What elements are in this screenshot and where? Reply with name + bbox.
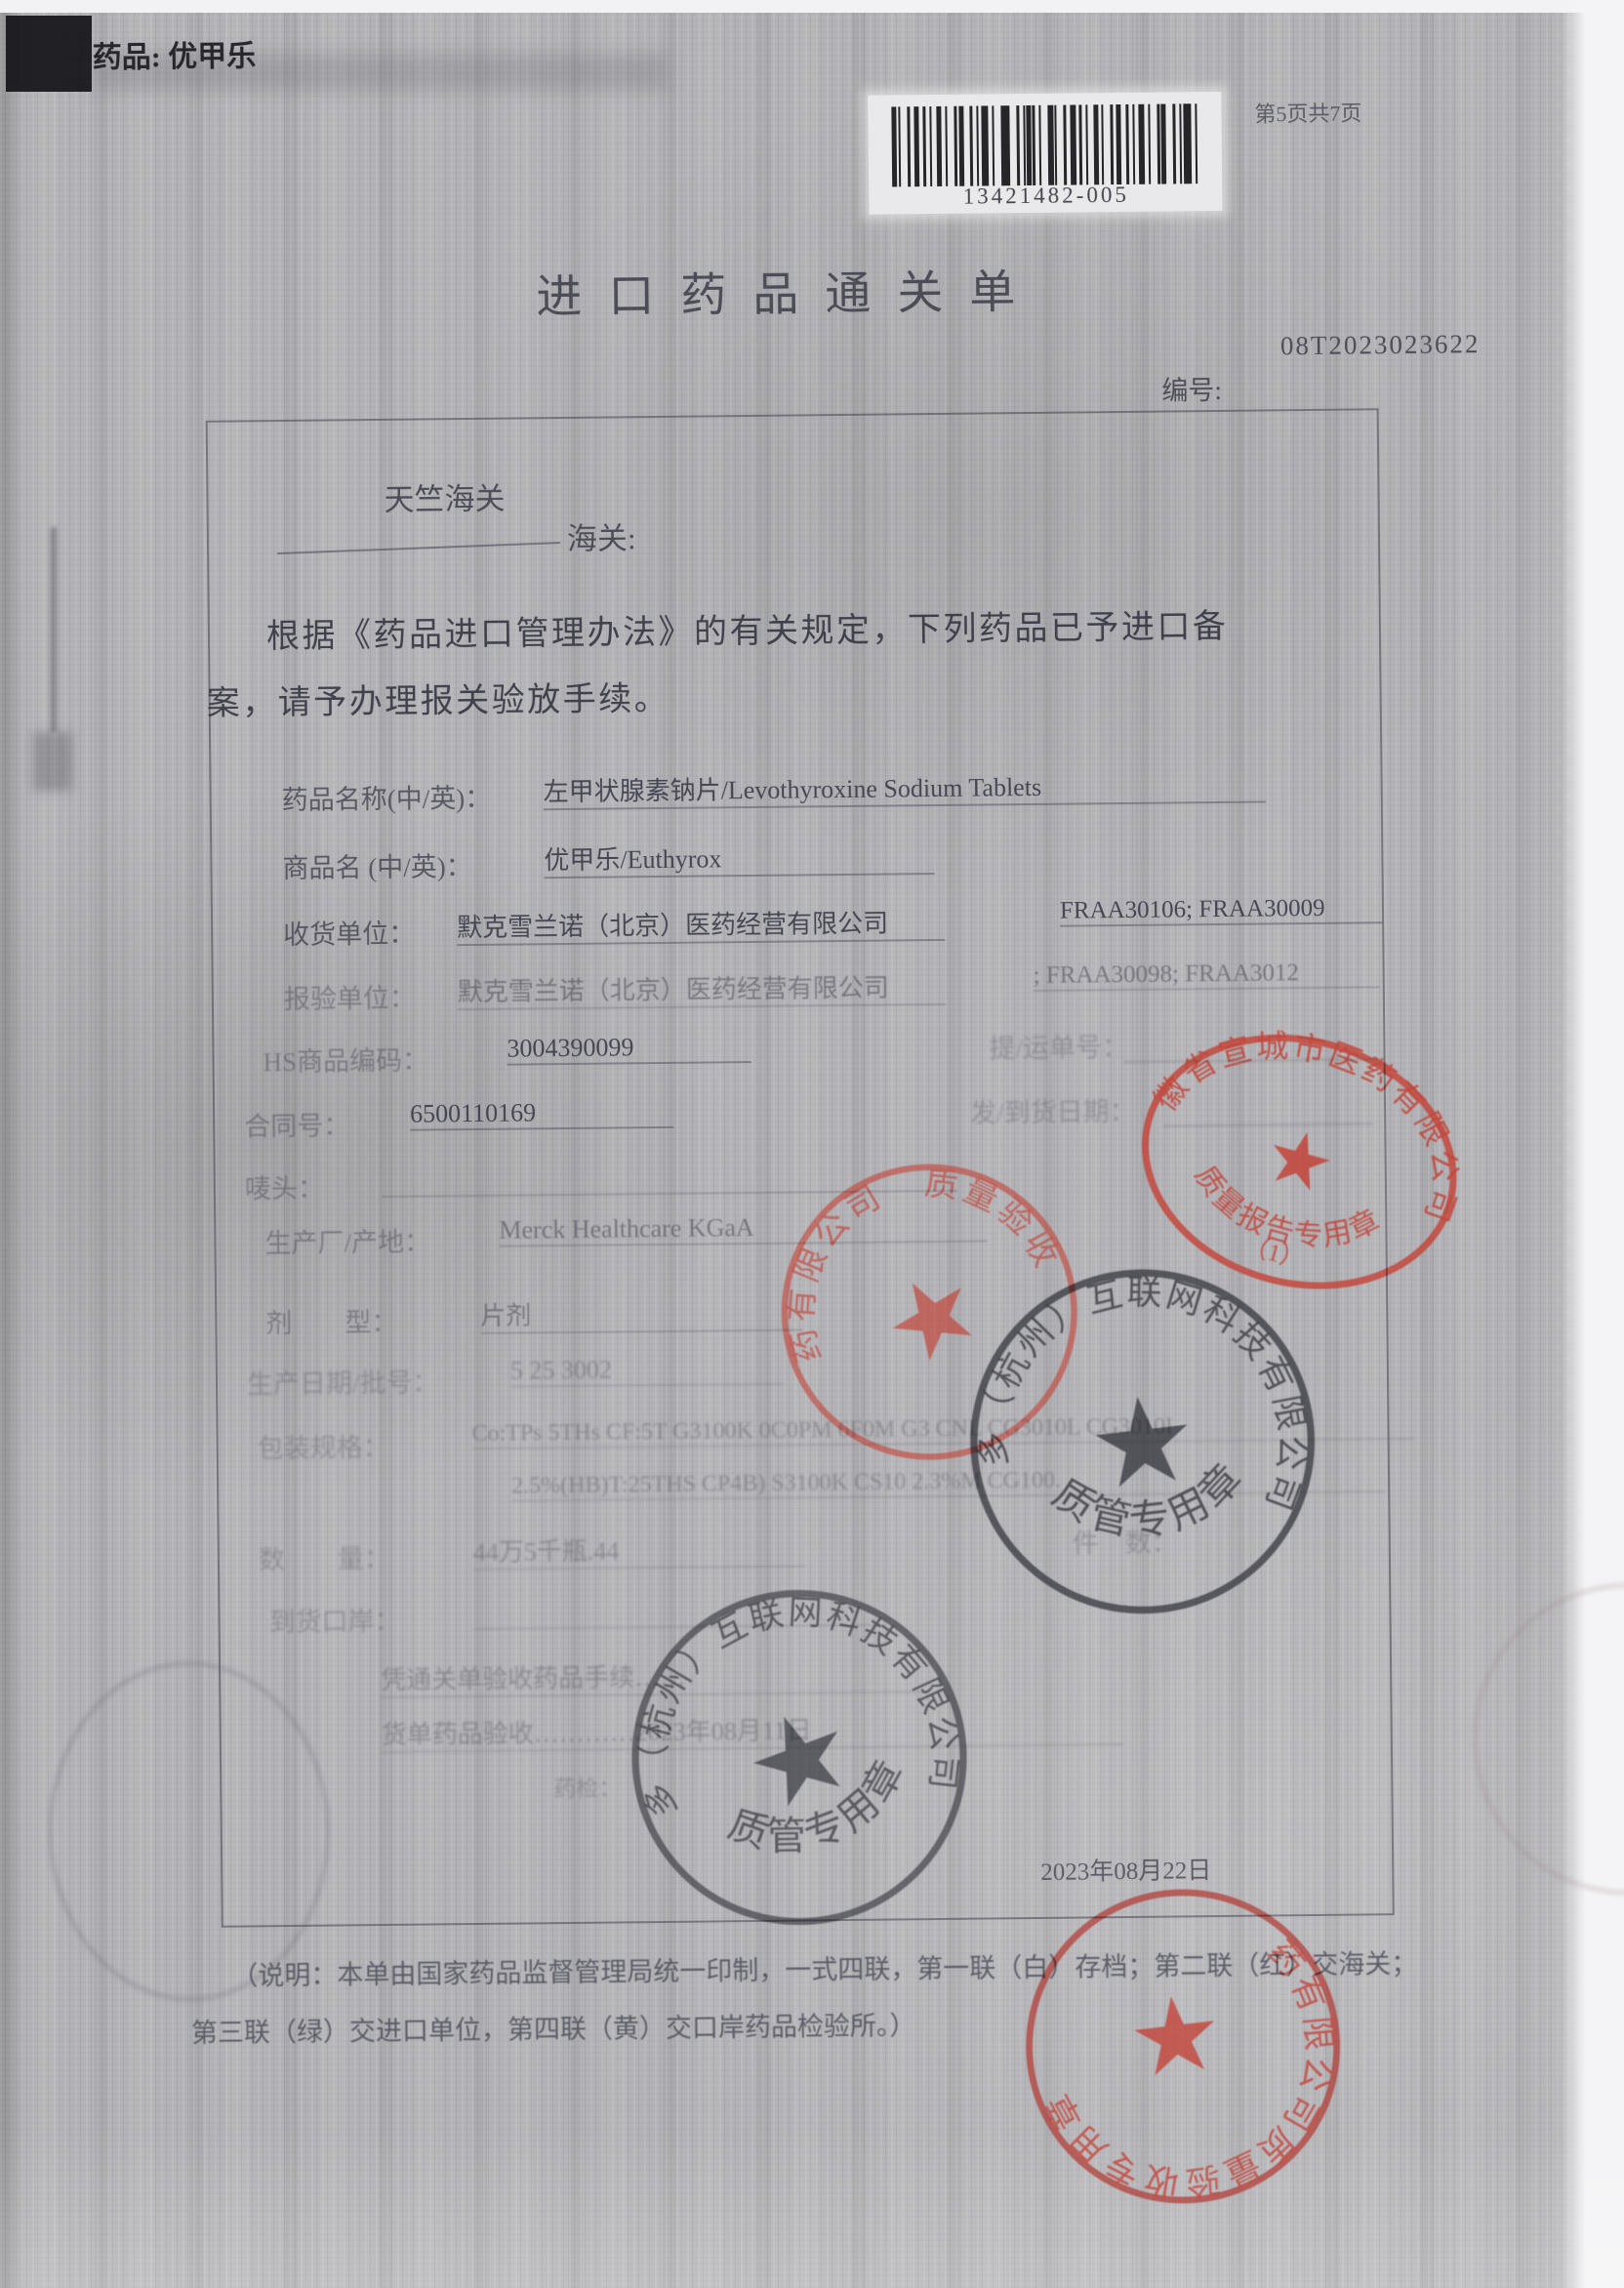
- field-label: 收货单位：: [283, 913, 415, 952]
- field-value: 6500110169: [410, 1097, 673, 1131]
- svg-text:★: ★: [1255, 1111, 1344, 1210]
- field-right-value: FRAA30106; FRAA30009: [1060, 894, 1382, 926]
- field-label: 到货口岸：: [268, 1600, 400, 1639]
- svg-text:★: ★: [1103, 1965, 1251, 2114]
- field-right-label: 提/运单号：: [989, 1026, 1128, 1065]
- serial-label: 编号:: [1161, 369, 1222, 408]
- scanned-customs-form: 药品: 优甲乐 13421482-005 第5页共7页 进口药品通关单 08T2…: [0, 0, 1624, 2288]
- corner-label: 药品: 优甲乐: [92, 31, 256, 76]
- field-value: 5 25 3002: [510, 1354, 784, 1388]
- field-value: 3004390099: [507, 1032, 751, 1066]
- field-label: 数 量：: [259, 1537, 390, 1576]
- field-label: 生产厂/产地：: [264, 1220, 430, 1260]
- field-label: 包装规格：: [257, 1426, 388, 1465]
- field-value: 优甲乐/Euthyrox: [544, 837, 934, 878]
- field-label: 唛头：: [245, 1167, 324, 1206]
- field-value: 默克雪兰诺（北京）医药经营有限公司: [458, 967, 946, 1010]
- customs-name: 天竺海关: [384, 474, 505, 519]
- body-line-2: 案，请予办理报关验放手续。: [206, 672, 670, 724]
- barcode-panel: 13421482-005: [868, 92, 1222, 215]
- field-right-value: ; FRAA30098; FRAA3012: [1034, 959, 1380, 992]
- footer-line-2: 第三联（绿）交进口单位，第四联（黄）交口岸药品检验所。）: [191, 2004, 916, 2050]
- black-round-stamp-1: 哈多多（杭州）互联网科技有限公司 ★ 质管专用章: [943, 1242, 1343, 1642]
- field-label: 商品名 (中/英)：: [282, 845, 472, 885]
- field-label: 生产日期/批号：: [247, 1361, 439, 1401]
- page-indicator: 第5页共7页: [1254, 96, 1361, 128]
- barcode-number: 13421482-005: [892, 182, 1199, 210]
- field-value: 44万5千瓶.44: [473, 1529, 805, 1571]
- ghost-stamp-right: [1471, 1581, 1624, 1897]
- field-label: 剂 型：: [265, 1301, 397, 1340]
- customs-suffix: 海关:: [567, 513, 636, 558]
- field-label: 合同号：: [244, 1104, 349, 1143]
- barcode: [891, 103, 1199, 186]
- faint-label: 药检：: [553, 1769, 621, 1803]
- page-title: 进口药品通关单: [536, 254, 1042, 326]
- body-line-1: 根据《药品进口管理办法》的有关规定，下列药品已予进口备: [266, 599, 1229, 657]
- field-label: 药品名称(中/英)：: [282, 777, 492, 817]
- serial-number: 08T2023023622: [1280, 329, 1481, 361]
- ghost-stamp-left: [47, 1660, 332, 2003]
- svg-text:医药有限公司质量验收专用章: 医药有限公司质量验收专用章: [1031, 1880, 1417, 2281]
- field-value: 默克雪兰诺（北京）医药经营有限公司: [457, 903, 945, 946]
- field-value: 左甲状腺素钠片/Levothyroxine Sodium Tablets: [543, 764, 1265, 810]
- field-label: HS商品编码：: [263, 1039, 428, 1079]
- field-label: 报验单位：: [284, 977, 416, 1016]
